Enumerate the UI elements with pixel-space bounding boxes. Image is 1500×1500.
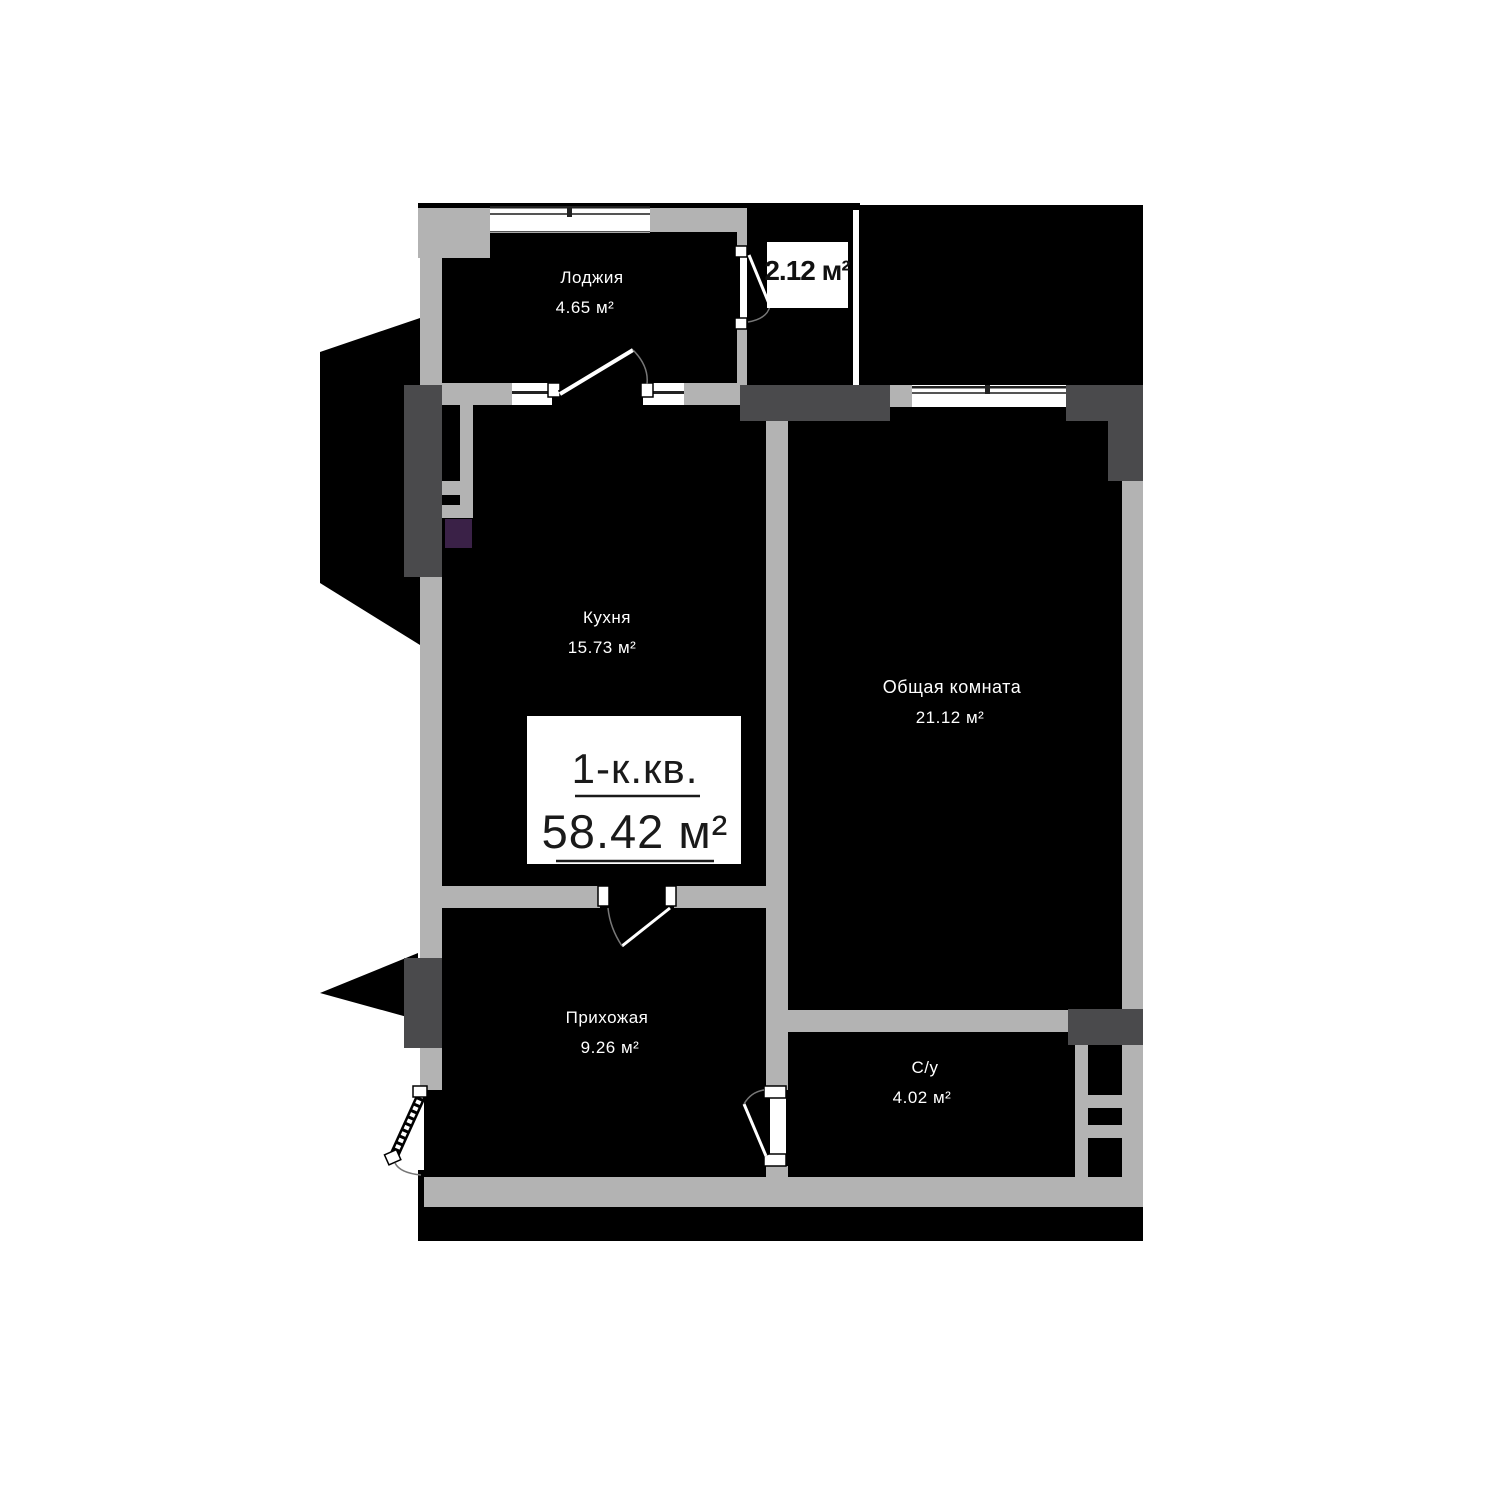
door-jamb [548,383,560,397]
wall-loggia-bottom-right [684,383,740,405]
door-jamb [413,1086,427,1097]
wall-kitchen-hallway-left [424,886,600,908]
window-living-top [912,385,1066,407]
exterior-wedge-lower [320,953,418,1020]
storage-right-separator [853,210,859,385]
label-bathroom-area: 4.02 м² [893,1088,952,1107]
label-bathroom-name: С/у [912,1058,939,1077]
door-jamb [641,383,653,397]
wall-bathroom-top [786,1010,1068,1032]
window-loggia-bottom-left [512,383,552,405]
wall-storage-left-lower [737,322,747,385]
door-jamb [764,1086,786,1098]
wall-right [1122,478,1143,1010]
shaft-right-rung-2 [1075,1125,1122,1138]
wall-top-right-of-window [650,208,740,232]
wall-kitchen-living-divider [766,420,788,1090]
wall-bottom [424,1177,1143,1207]
wall-loggia-bottom-left [442,383,512,405]
label-kitchen-name: Кухня [583,608,631,627]
label-kitchen-area: 15.73 м² [568,638,637,657]
storage-label-box: 2.12 м² [764,242,850,308]
wall-dark-right-corner [1066,385,1143,421]
shaft-wall-stub [442,481,462,495]
label-living-area: 21.12 м² [916,708,985,727]
wall-dark-bottom-right [1068,1009,1143,1045]
door-jamb [598,886,609,906]
label-loggia-name: Лоджия [560,268,623,287]
wall-dark-top-band [740,385,890,421]
label-living-name: Общая комната [883,677,1022,697]
door-entrance [384,1086,427,1175]
shaft-right-wall-left [1075,1045,1088,1185]
floor-plan-drawing: Лоджия 4.65 м² 2.12 м² Кухня 15.73 м² Об… [0,0,1500,1500]
label-loggia-area: 4.65 м² [556,298,615,317]
label-hallway-name: Прихожая [566,1008,649,1027]
window-mullion [985,385,990,394]
pillar-left-upper [404,385,442,577]
floor-plan-page: Лоджия 4.65 м² 2.12 м² Кухня 15.73 м² Об… [0,0,1500,1500]
title-box: 1-к.кв. 58.42 м² [527,716,741,864]
wall-living-top-left-block [888,385,912,407]
label-hallway-area: 9.26 м² [581,1038,640,1057]
door-leaf-stripes [393,1094,422,1158]
door-jamb [735,318,747,329]
door-jamb [665,886,676,906]
shaft-right-rung-1 [1075,1095,1122,1108]
door-jamb [735,246,747,257]
title-apartment-type: 1-к.кв. [572,745,699,792]
window-pane-line [490,231,650,233]
pillar-left-lower [404,958,442,1048]
wall-left [420,208,442,1090]
title-apartment-area: 58.42 м² [542,805,729,858]
window-mullion [567,206,572,217]
bottom-band [418,1203,1143,1241]
shaft-purple-block [445,519,472,548]
wall-dark-right-upper [1108,421,1143,481]
wall-kitchen-hallway-right [674,886,768,908]
label-storage-area: 2.12 м² [764,255,850,286]
door-jamb [764,1154,786,1166]
door-arc [395,1163,421,1175]
window-pane-line [512,391,552,394]
bottom-left-edge [418,1170,424,1240]
shaft-wall-vertical [460,405,473,517]
window-loggia-top [490,206,650,233]
shaft-wall-bottom [442,505,473,518]
